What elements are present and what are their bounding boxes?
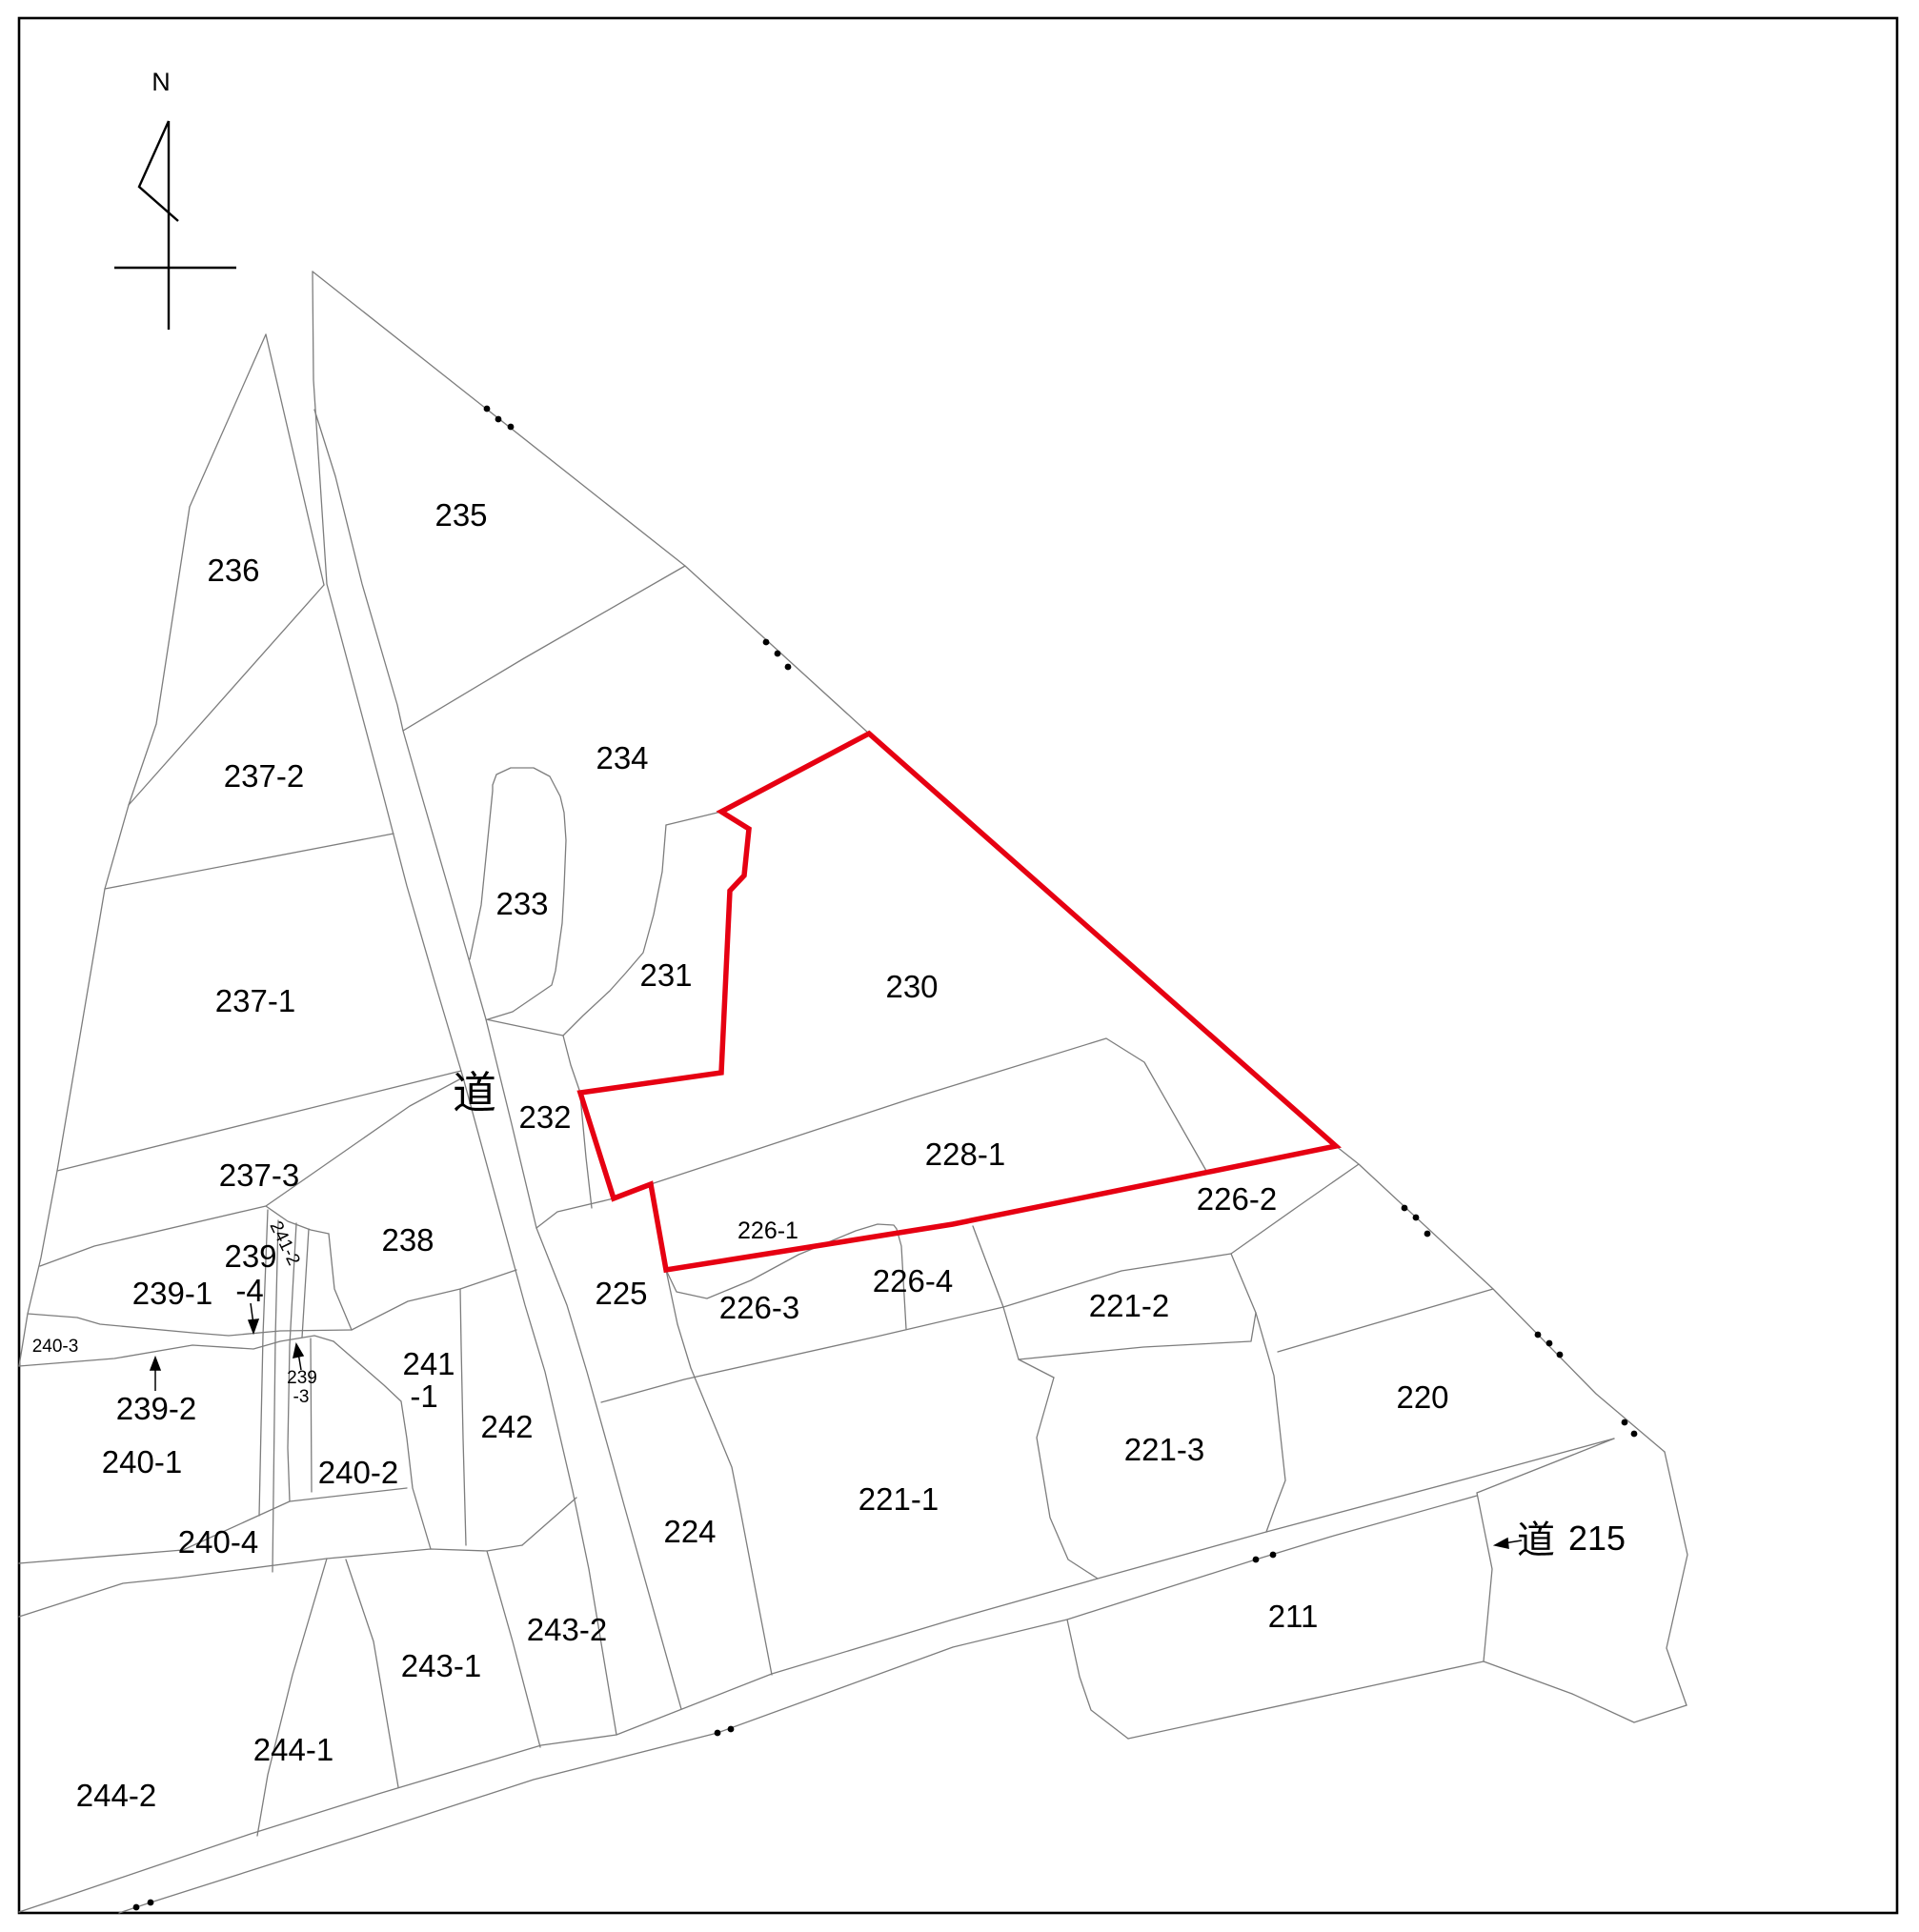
svg-text:221-2: 221-2	[1089, 1288, 1169, 1323]
svg-text:241: 241	[402, 1346, 454, 1381]
svg-text:236: 236	[207, 553, 259, 588]
svg-text:224: 224	[663, 1514, 716, 1549]
svg-text:243-2: 243-2	[527, 1612, 607, 1647]
svg-text:215: 215	[1568, 1519, 1626, 1558]
svg-text:244-1: 244-1	[253, 1732, 333, 1767]
svg-text:237-3: 237-3	[219, 1157, 299, 1193]
svg-text:211: 211	[1268, 1599, 1319, 1634]
svg-text:228-1: 228-1	[925, 1137, 1005, 1172]
svg-text:239: 239	[224, 1238, 276, 1274]
svg-text:239: 239	[287, 1368, 317, 1388]
svg-text:243-1: 243-1	[401, 1648, 481, 1683]
svg-text:244-2: 244-2	[76, 1778, 156, 1813]
svg-text:道: 道	[1517, 1519, 1555, 1561]
svg-text:226-1: 226-1	[737, 1218, 798, 1244]
svg-text:道: 道	[453, 1068, 496, 1117]
svg-text:239-1: 239-1	[132, 1276, 212, 1311]
svg-text:240-2: 240-2	[318, 1455, 398, 1490]
svg-text:231: 231	[639, 957, 692, 993]
svg-text:226-3: 226-3	[719, 1290, 799, 1325]
svg-text:-3: -3	[293, 1387, 310, 1407]
svg-text:221-1: 221-1	[858, 1481, 939, 1517]
svg-text:226-2: 226-2	[1197, 1181, 1277, 1217]
svg-text:230: 230	[885, 969, 938, 1004]
svg-text:-4: -4	[235, 1273, 263, 1308]
svg-text:240-3: 240-3	[32, 1337, 79, 1357]
svg-text:N: N	[151, 68, 171, 96]
svg-text:-1: -1	[410, 1379, 437, 1414]
svg-text:234: 234	[596, 740, 648, 775]
svg-text:240-4: 240-4	[178, 1524, 258, 1560]
svg-text:220: 220	[1396, 1379, 1448, 1415]
svg-text:237-2: 237-2	[224, 758, 304, 794]
svg-text:239-2: 239-2	[116, 1391, 196, 1426]
svg-text:226-4: 226-4	[873, 1263, 953, 1298]
svg-text:232: 232	[518, 1099, 571, 1135]
svg-text:240-1: 240-1	[102, 1444, 182, 1479]
svg-text:237-1: 237-1	[215, 983, 295, 1018]
svg-text:242: 242	[480, 1409, 533, 1444]
svg-text:233: 233	[495, 886, 548, 921]
svg-text:238: 238	[381, 1222, 434, 1258]
svg-text:221-3: 221-3	[1124, 1432, 1204, 1467]
svg-text:235: 235	[434, 497, 487, 533]
svg-text:225: 225	[595, 1276, 647, 1311]
